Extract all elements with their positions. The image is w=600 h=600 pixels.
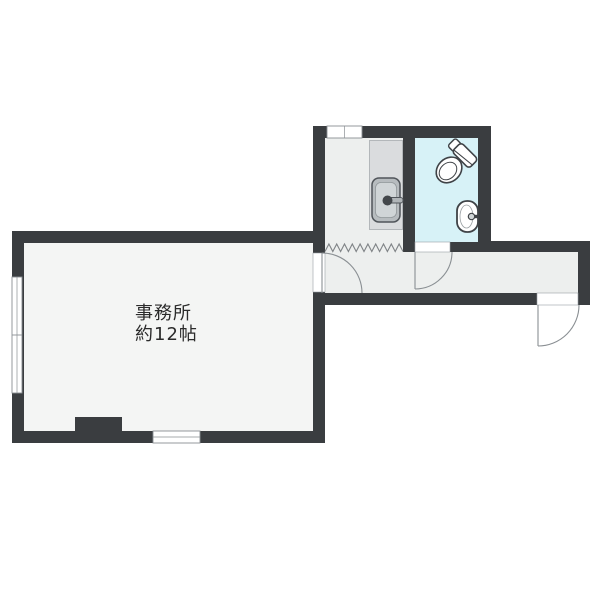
kitchen-sink-icon (372, 178, 403, 222)
office-door-swing-icon (322, 253, 362, 293)
floor-plan: 事務所 約12帖 (0, 0, 600, 600)
toilet-door-swing-icon (415, 252, 452, 289)
toilet-icon (426, 137, 478, 189)
toilet-door-opening (415, 242, 450, 252)
hand-basin-icon (457, 201, 478, 232)
symbol-overlay (0, 0, 600, 600)
accordion-curtain-icon (325, 244, 403, 252)
window-kitchenette-top-icon (327, 126, 362, 138)
window-office-bottom-icon (153, 431, 200, 443)
office-door-opening (313, 253, 325, 292)
exit-door-swing-icon (538, 305, 579, 346)
window-office-left-icon (12, 277, 22, 393)
exit-door-opening (537, 293, 578, 305)
